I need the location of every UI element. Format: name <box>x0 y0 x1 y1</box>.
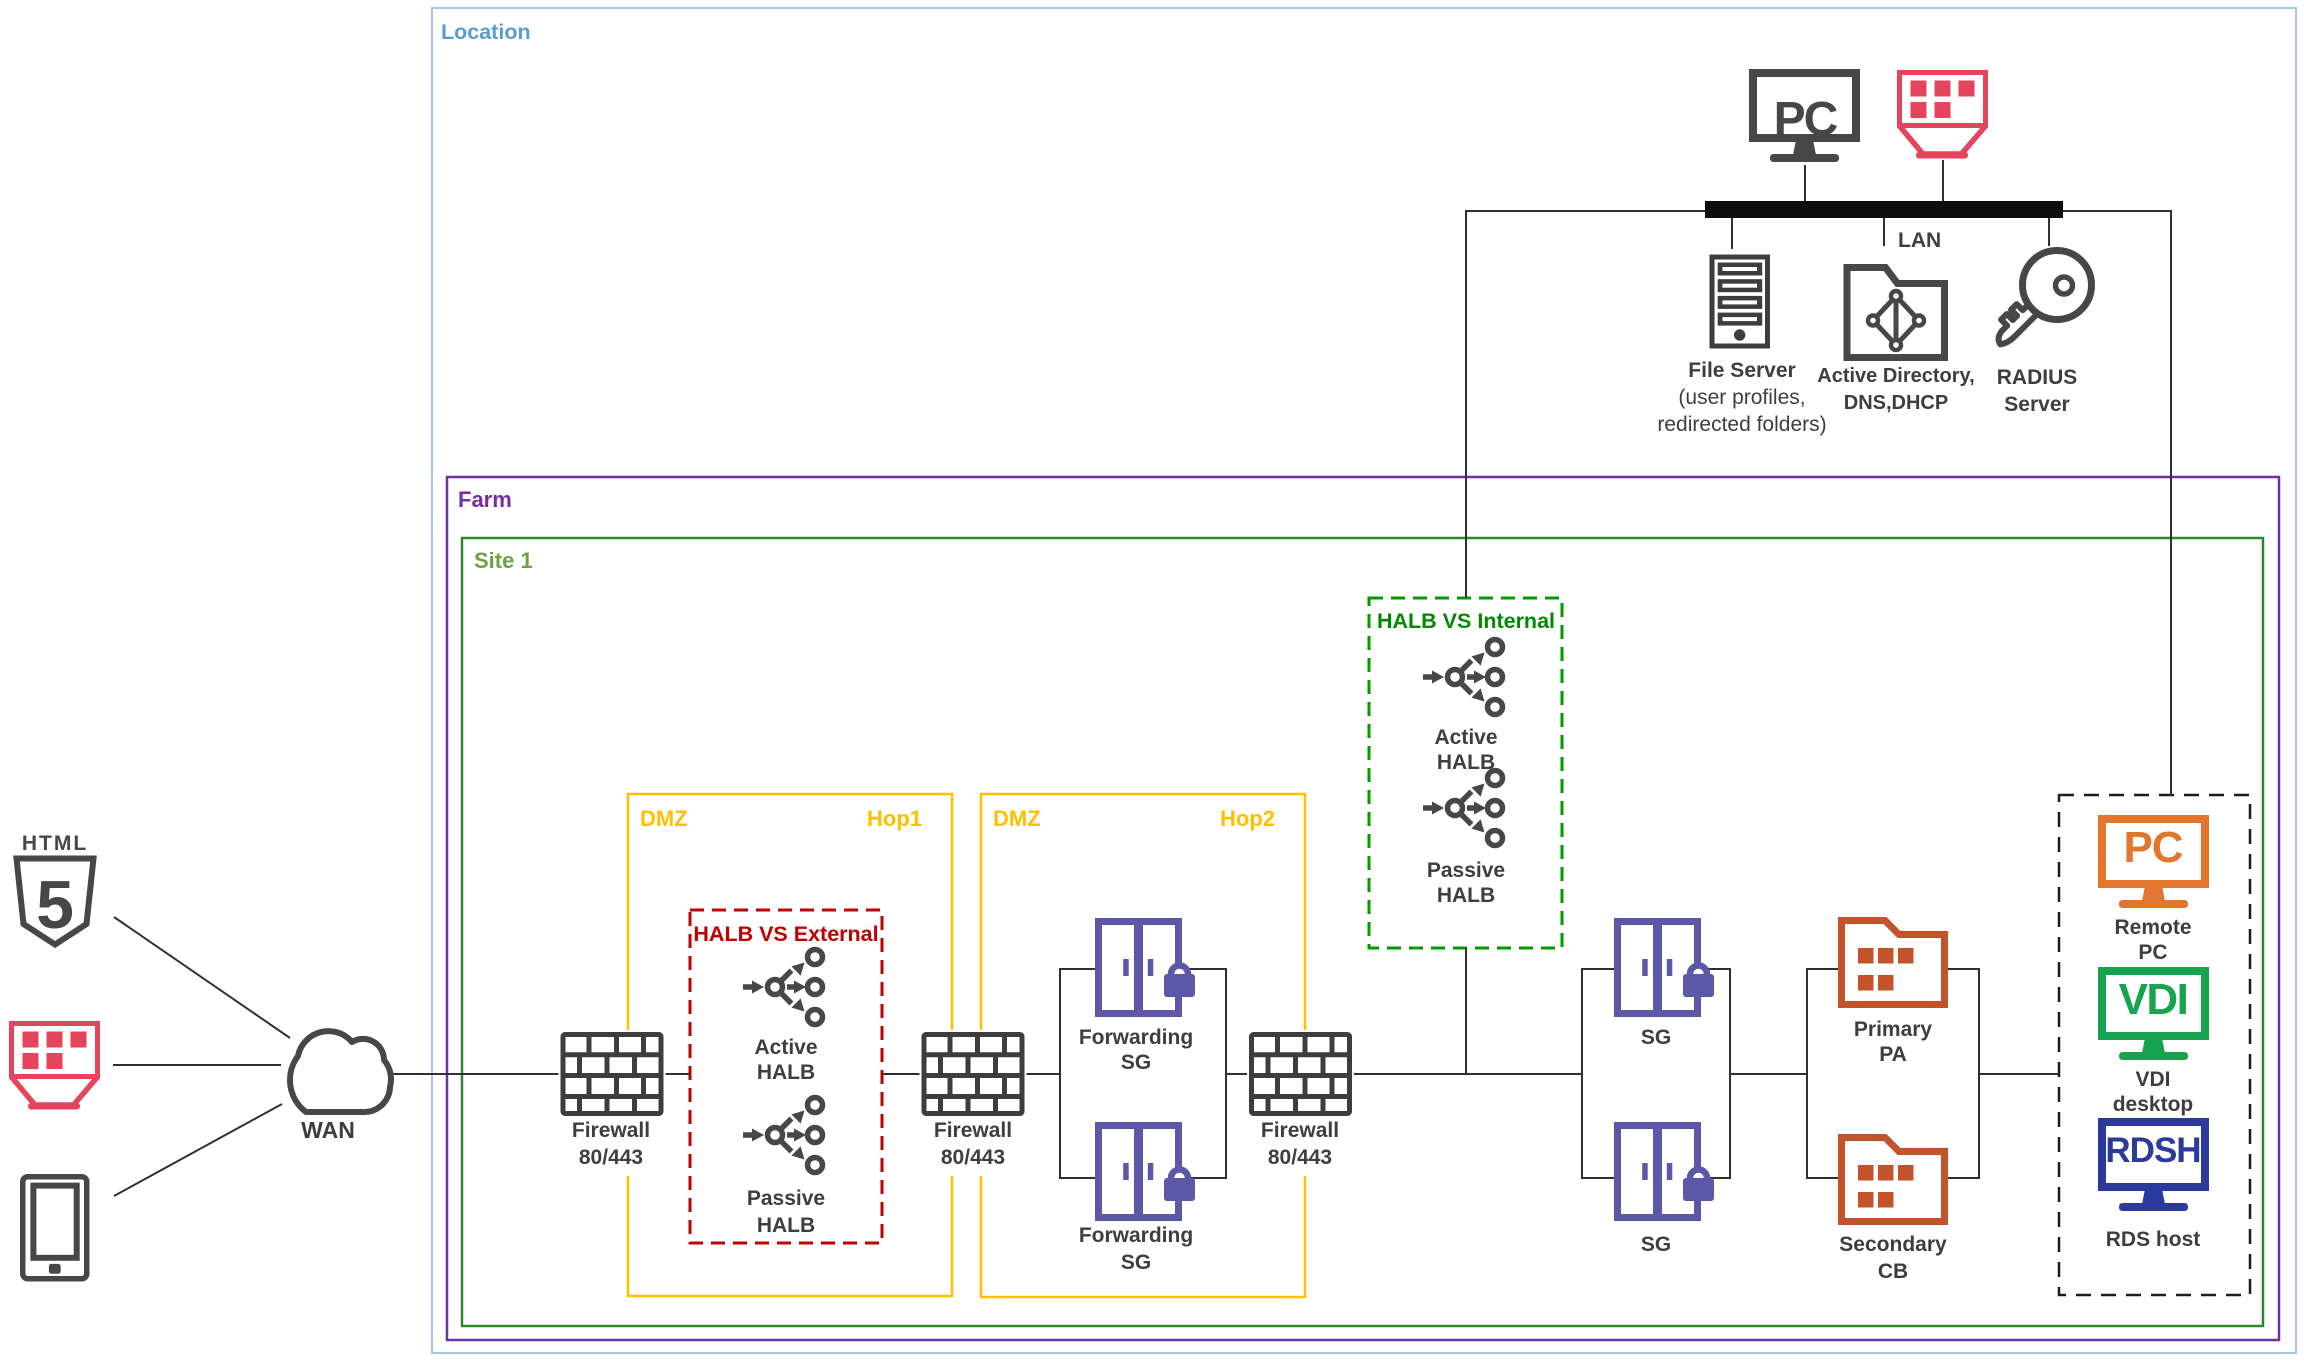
svg-text:HALB VS Internal: HALB VS Internal <box>1377 609 1555 633</box>
svg-text:Forwarding: Forwarding <box>1079 1224 1193 1247</box>
svg-text:HALB: HALB <box>757 1214 815 1237</box>
svg-text:5: 5 <box>36 867 74 943</box>
svg-text:Active: Active <box>1434 726 1497 749</box>
svg-text:RADIUS: RADIUS <box>1997 366 2078 389</box>
svg-text:SG: SG <box>1121 1051 1151 1074</box>
svg-text:Remote: Remote <box>2114 916 2191 939</box>
svg-text:Firewall: Firewall <box>1261 1119 1339 1142</box>
svg-text:Secondary: Secondary <box>1839 1233 1947 1256</box>
svg-text:(user profiles,: (user profiles, <box>1678 386 1805 409</box>
svg-text:Hop2: Hop2 <box>1220 806 1275 831</box>
svg-text:redirected folders): redirected folders) <box>1657 413 1826 436</box>
svg-text:VDI: VDI <box>2119 975 2188 1024</box>
svg-text:80/443: 80/443 <box>941 1146 1005 1169</box>
svg-text:RDSH: RDSH <box>2105 1131 2200 1170</box>
svg-text:SG: SG <box>1641 1233 1671 1256</box>
svg-text:PC: PC <box>1774 93 1838 146</box>
svg-text:DNS,DHCP: DNS,DHCP <box>1844 392 1948 414</box>
svg-text:Firewall: Firewall <box>934 1119 1012 1142</box>
svg-text:Site 1: Site 1 <box>474 548 533 573</box>
svg-text:LAN: LAN <box>1898 229 1941 252</box>
svg-text:CB: CB <box>1878 1260 1908 1283</box>
svg-text:Passive: Passive <box>747 1187 825 1210</box>
svg-text:desktop: desktop <box>2113 1093 2194 1116</box>
svg-text:Server: Server <box>2004 393 2069 416</box>
svg-text:Hop1: Hop1 <box>867 806 922 831</box>
svg-text:WAN: WAN <box>301 1117 355 1143</box>
svg-text:PA: PA <box>1879 1043 1907 1066</box>
svg-text:VDI: VDI <box>2135 1068 2170 1091</box>
svg-text:HALB VS External: HALB VS External <box>693 922 878 946</box>
svg-text:Firewall: Firewall <box>572 1119 650 1142</box>
svg-text:Active Directory,: Active Directory, <box>1817 365 1974 387</box>
svg-text:Farm: Farm <box>458 487 512 512</box>
svg-text:Location: Location <box>441 20 531 44</box>
svg-text:SG: SG <box>1641 1026 1671 1049</box>
svg-text:Forwarding: Forwarding <box>1079 1026 1193 1049</box>
svg-text:HALB: HALB <box>1437 884 1495 907</box>
svg-text:PC: PC <box>2138 941 2167 964</box>
svg-text:DMZ: DMZ <box>640 806 688 831</box>
svg-text:HALB: HALB <box>757 1061 815 1084</box>
svg-text:SG: SG <box>1121 1251 1151 1274</box>
svg-text:HTML: HTML <box>22 832 88 855</box>
svg-text:PC: PC <box>2123 823 2182 872</box>
svg-text:Passive: Passive <box>1427 859 1505 882</box>
svg-text:Primary: Primary <box>1854 1018 1933 1041</box>
svg-text:80/443: 80/443 <box>579 1146 643 1169</box>
svg-text:Active: Active <box>754 1036 817 1059</box>
svg-text:80/443: 80/443 <box>1268 1146 1332 1169</box>
svg-text:RDS host: RDS host <box>2106 1228 2201 1251</box>
svg-text:HALB: HALB <box>1437 751 1495 774</box>
svg-text:File Server: File Server <box>1688 359 1795 382</box>
svg-text:DMZ: DMZ <box>993 806 1041 831</box>
